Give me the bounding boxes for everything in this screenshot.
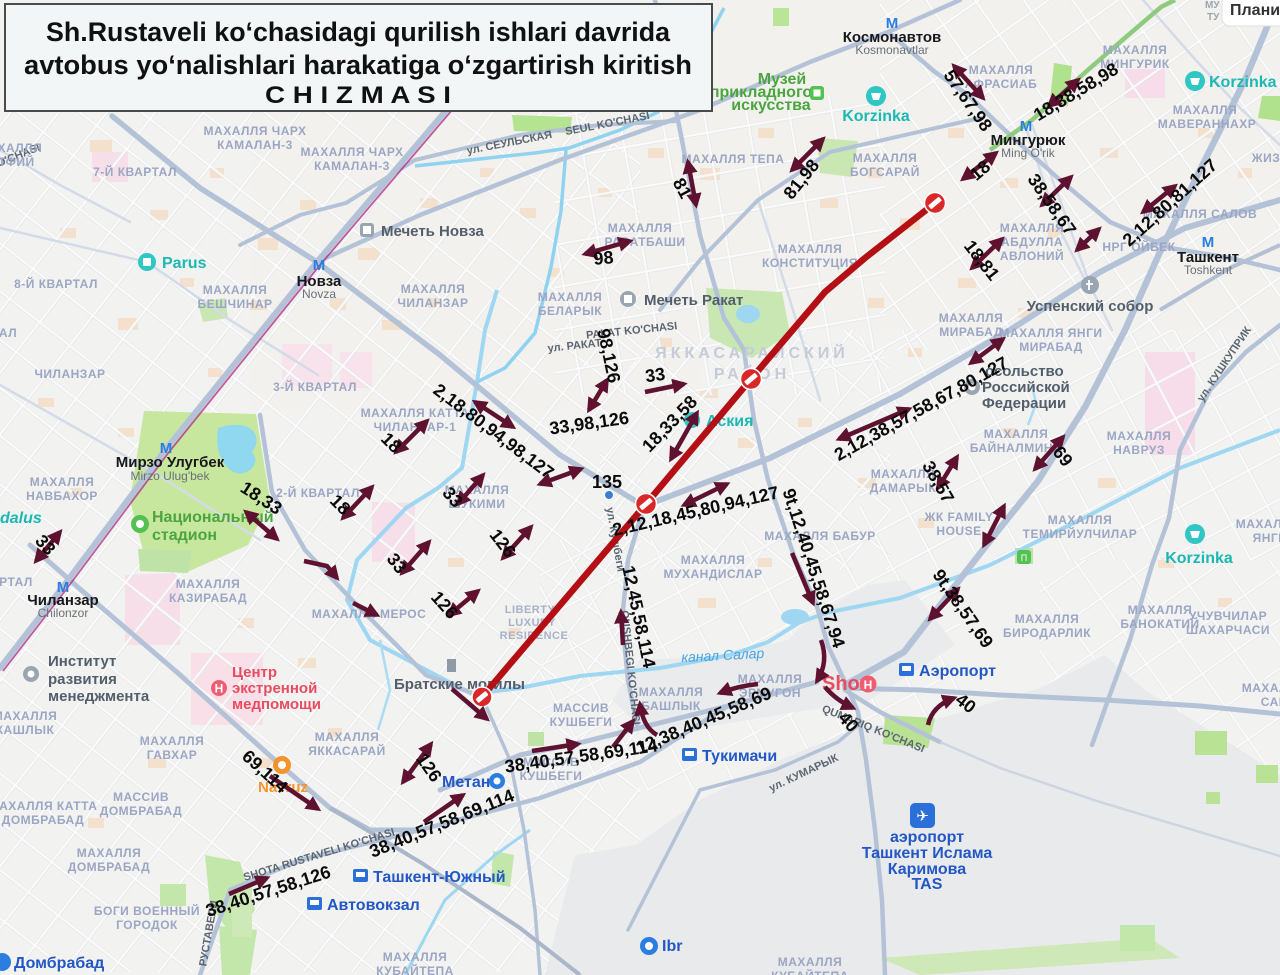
svg-text:МАХАЛЛЯ: МАХАЛЛЯ [939,311,1003,325]
svg-text:ЯНГИ: ЯНГИ [1253,531,1280,545]
svg-text:ТЕМИРЙУЛЧИЛАР: ТЕМИРЙУЛЧИЛАР [1023,526,1138,541]
svg-text:135: 135 [592,472,622,492]
svg-text:Korzinka: Korzinka [1165,550,1233,567]
svg-text:МАХАЛЛЯ: МАХАЛЛЯ [778,242,842,256]
svg-text:Федерации: Федерации [982,395,1066,412]
svg-text:HOUSE: HOUSE [936,524,981,538]
svg-text:98: 98 [593,247,615,269]
svg-text:Аэропорт: Аэропорт [919,663,996,680]
svg-text:МАХАЛЛЯ: МАХАЛЛЯ [853,151,917,165]
svg-text:МАХАЛЛЯ ТЕПА: МАХАЛЛЯ ТЕПА [682,152,785,166]
svg-text:Sh.Rustaveli ko‘chasidagi quri: Sh.Rustaveli ko‘chasidagi qurilish ishla… [46,17,671,47]
svg-text:БЕЛАРЫК: БЕЛАРЫК [538,304,602,318]
svg-text:Братские могилы: Братские могилы [394,676,525,693]
svg-text:Домбрабад: Домбрабад [14,955,104,972]
svg-text:МИРАБАД: МИРАБАД [939,325,1003,339]
svg-text:АЛ: АЛ [0,326,17,340]
svg-text:Н: Н [215,682,224,696]
svg-text:БОГИ ВОЕННЫЙ: БОГИ ВОЕННЫЙ [94,903,200,918]
svg-text:МАХАЛЛЯ: МАХАЛЛЯ [140,734,204,748]
svg-text:3-Й КВАРТАЛ: 3-Й КВАРТАЛ [273,379,357,394]
svg-text:Kosmonavtlar: Kosmonavtlar [855,43,928,57]
svg-text:Российской: Российской [982,379,1070,396]
svg-text:МАХАЛЛЯ: МАХАЛЛЯ [681,553,745,567]
svg-text:Ibr: Ibr [662,938,682,955]
svg-text:8-Й КВАРТАЛ: 8-Й КВАРТАЛ [14,276,98,291]
svg-text:МАССИВ: МАССИВ [553,701,609,715]
svg-text:МАХАЛЛЯ: МАХАЛЛЯ [538,290,602,304]
svg-text:Ташкент-Южный: Ташкент-Южный [373,869,506,886]
svg-text:БИРОДАРЛИК: БИРОДАРЛИК [1003,626,1091,640]
svg-text:МАХАЛЛЯ: МАХАЛЛЯ [1107,429,1171,443]
svg-text:МАХАЛЛЯ: МАХАЛЛЯ [969,63,1033,77]
svg-text:МАХАЛЛЯ: МАХАЛЛЯ [1242,681,1280,695]
svg-text:МАХАЛЛЯ: МАХАЛЛЯ [1173,103,1237,117]
svg-text:ШАХАРЧАСИ: ШАХАРЧАСИ [1186,623,1270,637]
svg-text:LIBERTY: LIBERTY [505,604,556,616]
svg-text:МАХАЛЛЯ: МАХАЛЛЯ [1128,603,1192,617]
svg-text:КАМАЛАН-3: КАМАЛАН-3 [314,159,390,173]
svg-text:медпомощи: медпомощи [232,696,321,713]
svg-text:П: П [1021,553,1027,563]
svg-text:КАМАЛАН-3: КАМАЛАН-3 [217,138,293,152]
svg-text:ЛУТФИЙ: ЛУТФИЙ [0,154,35,169]
svg-text:Toshkent: Toshkent [1184,263,1233,277]
svg-text:МАХАЛЛЯ: МАХАЛЛЯ [0,709,57,723]
svg-text:ТУ: ТУ [1207,12,1220,23]
svg-text:ЧИЛАНЗАР: ЧИЛАНЗАР [398,296,469,310]
svg-text:УЧУВЧИЛАР: УЧУВЧИЛАР [1189,609,1267,623]
svg-text:Korzinka: Korzinka [1209,74,1277,91]
svg-text:МАХАЛЛЯ ЧАРХ: МАХАЛЛЯ ЧАРХ [301,145,404,159]
svg-text:ДОМБРАБАД: ДОМБРАБАД [68,860,150,874]
svg-text:ДАМАРЫК: ДАМАРЫК [870,481,937,495]
svg-text:НАВРУЗ: НАВРУЗ [1113,443,1165,457]
svg-text:менеджмента: менеджмента [48,688,150,705]
svg-text:МАХАЛЛЯ: МАХАЛЛЯ [1236,517,1280,531]
svg-text:dalus: dalus [0,510,42,527]
svg-text:МАХАЛЛЯ: МАХАЛЛЯ [778,955,842,969]
svg-text:7-Й КВАРТАЛ: 7-Й КВАРТАЛ [93,164,177,179]
svg-text:ДОМБРАБАД: ДОМБРАБАД [100,804,182,818]
svg-text:Ташкент Ислама: Ташкент Ислама [862,845,993,862]
svg-text:МАХАЛЛЯ: МАХАЛЛЯ [1048,513,1112,527]
svg-text:МАХАЛЛЯ БАБУР: МАХАЛЛЯ БАБУР [764,529,875,543]
svg-text:Novza: Novza [302,287,336,301]
svg-text:МАХАЛЛЯ: МАХАЛЛЯ [203,283,267,297]
svg-text:МИРАБАД: МИРАБАД [1019,340,1083,354]
svg-text:Parus: Parus [162,255,207,272]
svg-text:TAS: TAS [912,876,943,893]
svg-text:Мечеть Ракат: Мечеть Ракат [644,292,743,309]
svg-text:развития: развития [48,671,117,688]
svg-text:МАХАЛЛЯ: МАХАЛЛЯ [0,141,42,155]
svg-text:НАВБАХОР: НАВБАХОР [26,489,98,503]
svg-text:33: 33 [644,364,667,387]
svg-text:Институт: Институт [48,653,116,670]
svg-text:ЖИЗ: ЖИЗ [1251,151,1280,165]
svg-text:МАХАЛЛЯ ЧАРХ: МАХАЛЛЯ ЧАРХ [204,124,307,138]
svg-text:РТАЛ: РТАЛ [0,575,33,589]
svg-text:МАХАЛЛЯ ЯНГИ: МАХАЛЛЯ ЯНГИ [1000,326,1103,340]
svg-text:ДОМБРАБАД: ДОМБРАБАД [2,813,84,827]
svg-text:КАЗИРАБАД: КАЗИРАБАД [169,591,247,605]
svg-text:МАХАЛЛЯ: МАХАЛЛЯ [401,282,465,296]
svg-text:ЧИЛАНЗАР: ЧИЛАНЗАР [35,367,106,381]
svg-text:МАХАЛЛЯ: МАХАЛЛЯ [383,950,447,964]
svg-text:МУ: МУ [1205,0,1220,11]
svg-text:avtobus yo‘nalishlari harakati: avtobus yo‘nalishlari harakatiga o‘zgart… [24,50,692,80]
svg-text:МАХАЛЛЯ: МАХАЛЛЯ [984,427,1048,441]
svg-text:Н: Н [864,678,873,692]
svg-text:МАХАЛЛЯ: МАХАЛЛЯ [608,221,672,235]
svg-text:МАХАЛЛЯ: МАХАЛЛЯ [315,730,379,744]
svg-text:МАССИВ: МАССИВ [113,790,169,804]
svg-text:ЖК FAMILY: ЖК FAMILY [924,510,994,524]
svg-text:КУБАЙТЕПА: КУБАЙТЕПА [771,968,849,975]
svg-text:Mirzo Ulug'bek: Mirzo Ulug'bek [131,469,211,483]
svg-text:БОГСАРАЙ: БОГСАРАЙ [850,164,920,179]
svg-text:аэропорт: аэропорт [890,829,964,846]
svg-text:Центр: Центр [232,664,277,681]
svg-text:C H I Z M A S I: C H I Z M A S I [265,82,451,109]
svg-text:АБДУЛЛА: АБДУЛЛА [1001,235,1063,249]
svg-text:САР: САР [1261,695,1280,709]
svg-text:МАВЕРАННАХР: МАВЕРАННАХР [1158,117,1256,131]
svg-text:КОНСТИТУЦИЯ: КОНСТИТУЦИЯ [762,256,858,270]
svg-text:КАШЛЫК: КАШЛЫК [0,723,54,737]
svg-text:МАХАЛЛЯ: МАХАЛЛЯ [176,577,240,591]
svg-text:МАХАЛЛЯ: МАХАЛЛЯ [639,685,703,699]
svg-text:ЯККАСАРАЙСКИЙ: ЯККАСАРАЙСКИЙ [655,343,849,362]
svg-text:Тукимачи: Тукимачи [702,748,777,765]
svg-text:БЕШЧИНАР: БЕШЧИНАР [197,297,272,311]
svg-text:МАХАЛЛЯ: МАХАЛЛЯ [1103,43,1167,57]
svg-text:Korzinka: Korzinka [842,108,910,125]
svg-text:МАХАЛЛЯ КАТТА: МАХАЛЛЯ КАТТА [0,799,97,813]
svg-text:М: М [313,257,326,274]
svg-text:стадион: стадион [152,527,217,544]
svg-text:МАХАЛЛЯ: МАХАЛЛЯ [1015,612,1079,626]
svg-text:МУХАНДИСЛАР: МУХАНДИСЛАР [664,567,763,581]
svg-text:КУБАЙТЕПА: КУБАЙТЕПА [376,963,454,975]
svg-text:Мечеть Новза: Мечеть Новза [381,223,485,240]
svg-text:БАШЛЫК: БАШЛЫК [641,699,701,713]
svg-text:Успенский собор: Успенский собор [1027,298,1154,315]
svg-text:искусства: искусства [731,97,811,114]
svg-text:ЯККАСАРАЙ: ЯККАСАРАЙ [308,743,385,758]
svg-text:Метан: Метан [442,774,490,791]
svg-text:экстренной: экстренной [232,680,317,697]
svg-text:✈: ✈ [916,808,929,825]
svg-text:АВЛОНИЙ: АВЛОНИЙ [1000,248,1064,263]
svg-text:ГАВХАР: ГАВХАР [147,748,198,762]
svg-text:КУШБЕГИ: КУШБЕГИ [550,715,613,729]
svg-text:Автовокзал: Автовокзал [327,897,420,914]
svg-text:ГОРОДОК: ГОРОДОК [116,918,178,932]
svg-text:Плани: Плани [1230,2,1280,19]
svg-text:МАХАЛЛЯ: МАХАЛЛЯ [30,475,94,489]
svg-text:Chilonzor: Chilonzor [38,606,89,620]
svg-text:Ming O'rik: Ming O'rik [1001,146,1056,160]
svg-text:МАХАЛЛЯ: МАХАЛЛЯ [77,846,141,860]
